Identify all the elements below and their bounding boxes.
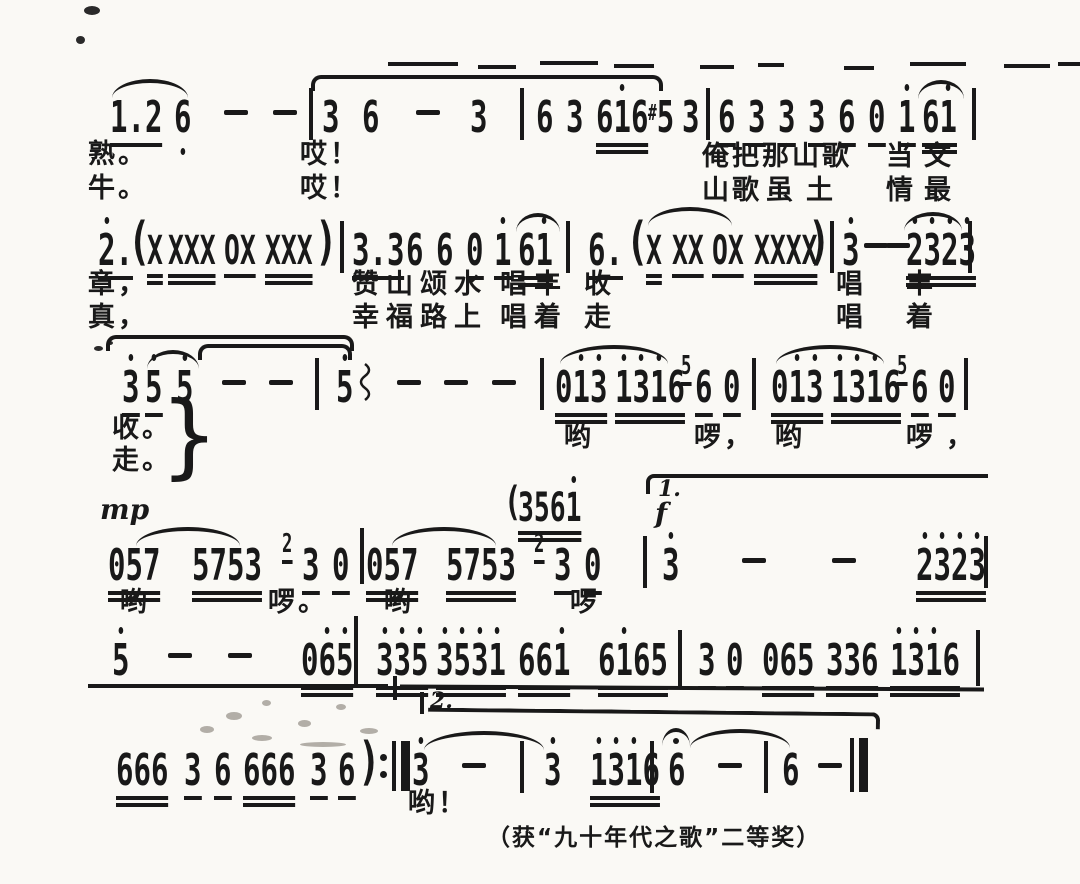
notation-note: 6 [782,734,799,793]
lyric-brace: } [160,398,219,473]
scan-line-artifact [758,63,784,67]
barline [360,528,364,584]
barline [566,221,570,273]
dash-note [832,558,856,563]
barline [315,358,319,410]
barline [420,692,424,714]
scan-speck [84,6,100,15]
lyric-text: 唱 [836,270,866,300]
sharp-icon: # [648,101,657,126]
notation-note: 3 [698,624,715,690]
notation-note: 5753 [446,529,516,602]
lyric-text: 真， [88,303,148,333]
barline [964,358,968,410]
barline [830,221,834,273]
notation-note: 6 [174,81,191,157]
notation-note: 616 [596,81,648,154]
parenthesis: ) [808,216,831,268]
grace-note: 2 [282,516,292,564]
barline [354,616,358,684]
grace-note: 2 [534,516,544,564]
dash-note [397,380,421,385]
barline [393,676,397,700]
lyric-text: 虽 [766,176,796,206]
scan-line-artifact [844,66,874,70]
notation-note: 0 [584,529,601,595]
lyric-text: 当 [886,142,916,172]
notation-note: 6 [406,214,423,273]
dash-note [228,653,252,658]
notation-note: 3 [122,351,139,417]
scan-line-artifact [1058,62,1080,66]
notation-note: 6 [338,734,355,800]
dash-note [269,380,293,385]
notation-note: 1316 [615,351,685,424]
barline [984,536,988,588]
lyric-text: 丰 [906,270,936,300]
lyric-text: 哎！ [300,140,360,170]
dash-note [818,763,842,768]
percussion-note: OX [224,216,256,278]
notation-note: 3 [808,81,825,147]
notation-note: 3 [748,81,765,147]
notation-note: 6 [718,81,735,147]
grace-note: 5 [897,338,907,386]
lyric-text: 最 [924,176,954,206]
notation-note: 0 [868,81,885,147]
dash-note [224,110,248,115]
notation-note: 3 [554,529,571,595]
dash-note [416,110,440,115]
repeat-barline [380,741,410,791]
phrase-slur [198,344,352,360]
barline [968,221,972,273]
barline [643,536,647,588]
scan-line-artifact [700,65,734,69]
scan-line-artifact [88,684,388,688]
notation-note: 6 [214,734,231,800]
lyric-text: 哟 [120,588,150,618]
notation-note: 5753 [192,529,262,602]
notation-note: 3 [310,734,327,800]
lyric-text: 着 [906,303,936,333]
notation-note: 1316 [890,624,960,697]
dash-note [168,653,192,658]
lyric-text: 啰 [906,423,936,453]
scan-line-artifact [910,62,966,66]
dash-note [462,763,486,768]
barline [752,358,756,410]
notation-note: 666 [243,734,295,807]
notation-note: 3 [322,81,339,140]
notation-note: 013 [771,351,823,424]
notation-note: 0 [938,351,955,417]
scan-line-artifact [614,64,654,68]
percussion-note: OX [712,216,744,278]
notation-note: 3 [302,529,319,595]
notation-note: 3 [470,81,487,140]
dash-note [718,763,742,768]
barline [520,88,524,140]
notation-note: 0 [723,351,740,417]
parenthesis: ) [315,216,338,268]
scan-line-artifact [1004,64,1050,68]
scan-line-artifact [478,65,516,69]
percussion-note: XX [672,216,704,278]
dash-note [492,380,516,385]
slur [690,729,790,748]
pickup-notes: 3561 [518,473,582,542]
lyric-text: 啰。 [268,588,328,618]
dash-note [444,380,468,385]
barline [340,221,344,273]
lyric-text: 哟 [564,423,594,453]
percussion-note: X [646,216,662,285]
notation-note: 5 [112,624,129,683]
lyric-text: 啰 [570,588,600,618]
notation-note: 1 [898,81,915,147]
notation-note: 6 [362,81,379,140]
notation-note: 6 [695,351,712,417]
ink-smudge [336,704,346,710]
ink-smudge [200,726,214,733]
notation-note: 6 [436,214,453,273]
parenthesis: ) [358,736,381,788]
scan-line-artifact [388,62,458,66]
notation-note: 5 [336,351,353,410]
final-barline [850,738,868,792]
barline [764,741,768,793]
volta-bracket [646,474,988,494]
lyric-text: 赞山颂水 [352,270,488,300]
lyric-text: 山歌 [702,176,762,206]
notation-note: 6 [911,351,928,417]
lyric-text: 唱丰 [500,270,568,300]
dash-note [222,380,246,385]
notation-note: 3 [184,734,201,800]
lyric-text: 熟。 [88,140,148,170]
barline [678,630,682,686]
dynamic-marking: f [655,500,667,528]
notation-note: 3 [412,734,429,793]
percussion-note: XXX [168,216,216,285]
notation-note: 3 [662,529,679,588]
ink-smudge [298,720,311,727]
lyric-text: 牛。 [88,174,148,204]
notation-note: 3 [778,81,795,147]
award-note: （获“九十年代之歌”二等奖） [487,818,821,852]
barline [706,88,710,140]
lyric-text: 哟 [775,423,805,453]
ink-smudge [262,700,271,706]
lyric-text: 唱 [836,303,866,333]
notation-note: 0 [726,624,743,690]
sheet-music-page: 1.2636363616#53633360161熟。哎！俺把那山歌当文牛。哎！山… [0,0,1080,884]
notation-note: 3 [566,81,583,140]
volta-line [428,708,880,730]
lyric-text: ， [946,423,976,453]
lyric-text: 唱着 [500,303,568,333]
notation-note: 2323 [916,529,986,602]
vibrato-icon [358,362,372,406]
lyric-text: 文 [924,142,954,172]
notation-note: 6 [668,734,685,793]
percussion-note: XXX [265,216,313,285]
notation-note: 6 [536,81,553,140]
dash-note [864,243,888,248]
lyric-text: 走 [584,303,614,333]
lyric-text: 情 [886,176,916,206]
lyric-text: 俺把那山歌 [702,142,852,172]
notation-note: 0 [332,529,349,595]
scan-line-artifact [540,61,598,65]
notation-note: 3 [682,81,699,140]
percussion-note: X [147,216,163,285]
barline [976,630,980,686]
lyric-text: 哟 [384,588,414,618]
lyric-text: 收 [584,270,614,300]
lyric-text: 幸福路上 [352,303,488,333]
notation-note: 666 [116,734,168,807]
notation-note: #5 [648,81,674,140]
grace-note: 5 [681,338,691,386]
slur [424,731,544,750]
notation-note: 6 [838,81,855,147]
lyric-text: 哎！ [300,174,360,204]
barline [520,741,524,793]
barline [650,741,654,793]
lyric-text: 土 [806,176,836,206]
notation-note: 3 [842,214,859,273]
lyric-text: 啰， [694,423,754,453]
notation-note: 1.2 [110,81,162,147]
notation-note: 013 [555,351,607,424]
lyric-text: 章， [88,270,148,300]
notation-note: 1316 [831,351,901,424]
scan-speck [76,36,85,44]
dynamic-marking: mp [100,496,149,524]
barline [972,88,976,140]
ink-smudge [226,712,242,720]
barline [540,358,544,410]
scan-speck [94,346,103,351]
lyric-text: 哟！ [408,789,468,819]
dash-note [742,558,766,563]
dash-note [273,110,297,115]
barline [309,88,313,140]
notation-note: 3 [544,734,561,793]
